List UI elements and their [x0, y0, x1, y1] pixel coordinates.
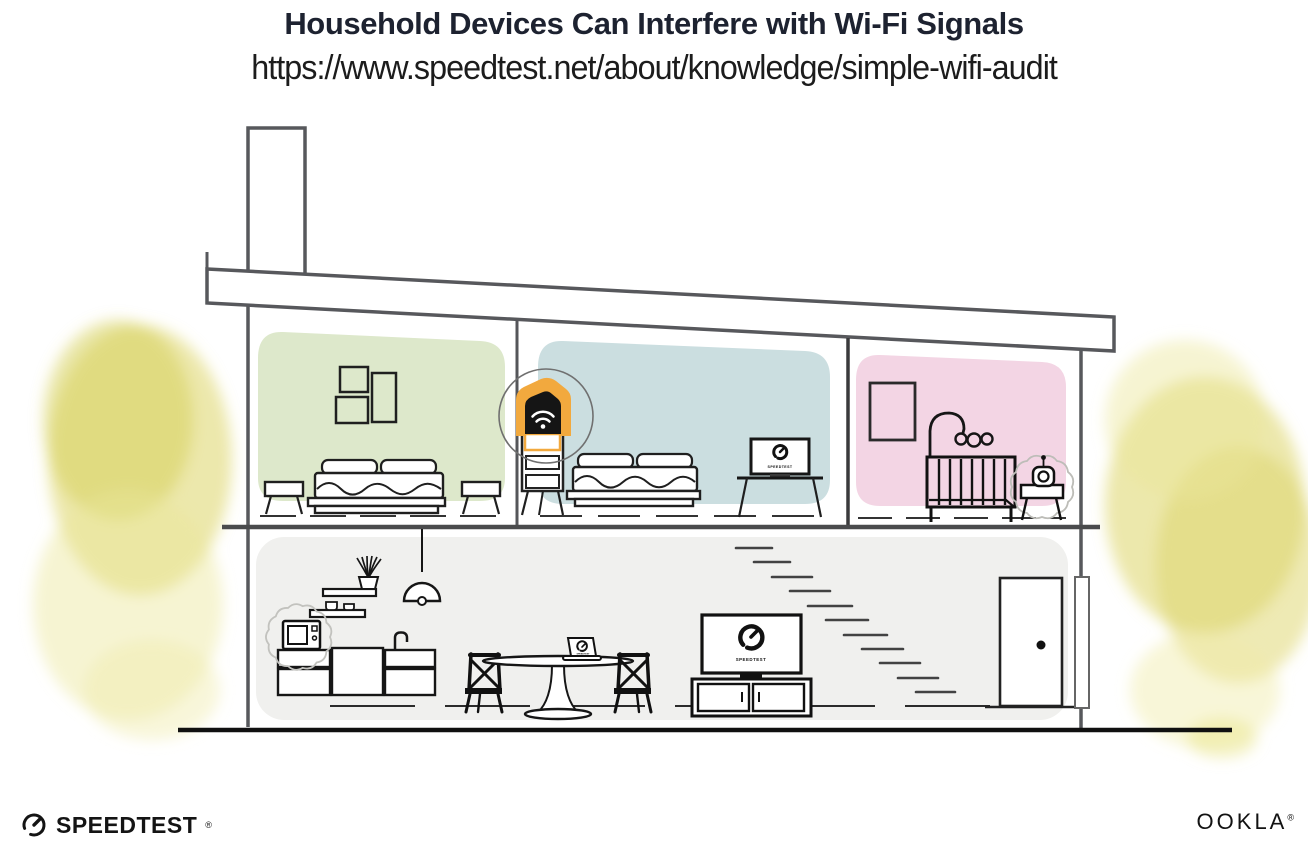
foliage-blob — [84, 640, 220, 740]
foliage-left — [33, 320, 232, 740]
shelf — [323, 589, 376, 596]
laptop-base — [563, 656, 601, 660]
speedtest-gauge-icon — [20, 811, 48, 839]
microwave — [283, 621, 320, 649]
trademark-symbol: ® — [1287, 813, 1294, 823]
plant-pot — [359, 577, 378, 589]
drawer-highlighted — [525, 434, 560, 450]
mattress — [573, 467, 697, 491]
foliage-blob — [1105, 340, 1265, 500]
bed-base — [567, 491, 700, 499]
tv: SPEEDTEST — [702, 615, 801, 678]
lamp-bulb — [418, 597, 426, 605]
dresser-leg — [522, 491, 528, 515]
dresser-leg — [539, 491, 543, 515]
bed — [567, 454, 700, 506]
ookla-wordmark: OOKLA — [1197, 809, 1288, 834]
kitchen-cabinets — [278, 648, 435, 695]
bed-base — [308, 498, 445, 506]
bed — [308, 460, 445, 513]
bed-base — [315, 506, 438, 513]
tv-screen-label: SPEEDTEST — [736, 657, 767, 662]
cup — [326, 602, 337, 610]
door-knob — [1037, 641, 1046, 650]
antenna-tip — [1041, 455, 1046, 460]
table-base — [525, 709, 591, 719]
speedtest-logo: SPEEDTEST® — [20, 811, 212, 839]
trademark-symbol: ® — [205, 820, 212, 830]
chimney — [248, 128, 305, 278]
foliage-blob — [1187, 718, 1257, 758]
cup — [344, 604, 354, 610]
house-cross-section-illustration: SPEEDTEST — [0, 0, 1308, 861]
table-top — [483, 656, 633, 666]
foliage-right — [1105, 340, 1308, 758]
wall-pillar — [1075, 577, 1089, 708]
tv-console — [692, 679, 811, 716]
tv-stand — [740, 674, 762, 678]
foliage-blob — [43, 320, 193, 520]
monitor-desk: SPEEDTEST — [737, 439, 823, 517]
speedtest-wordmark: SPEEDTEST — [56, 812, 197, 839]
drawer — [526, 475, 559, 488]
bed-base — [575, 499, 693, 506]
mattress — [315, 473, 443, 498]
ookla-logo: OOKLA® — [1197, 809, 1294, 835]
monitor-screen-label: SPEEDTEST — [768, 465, 793, 469]
